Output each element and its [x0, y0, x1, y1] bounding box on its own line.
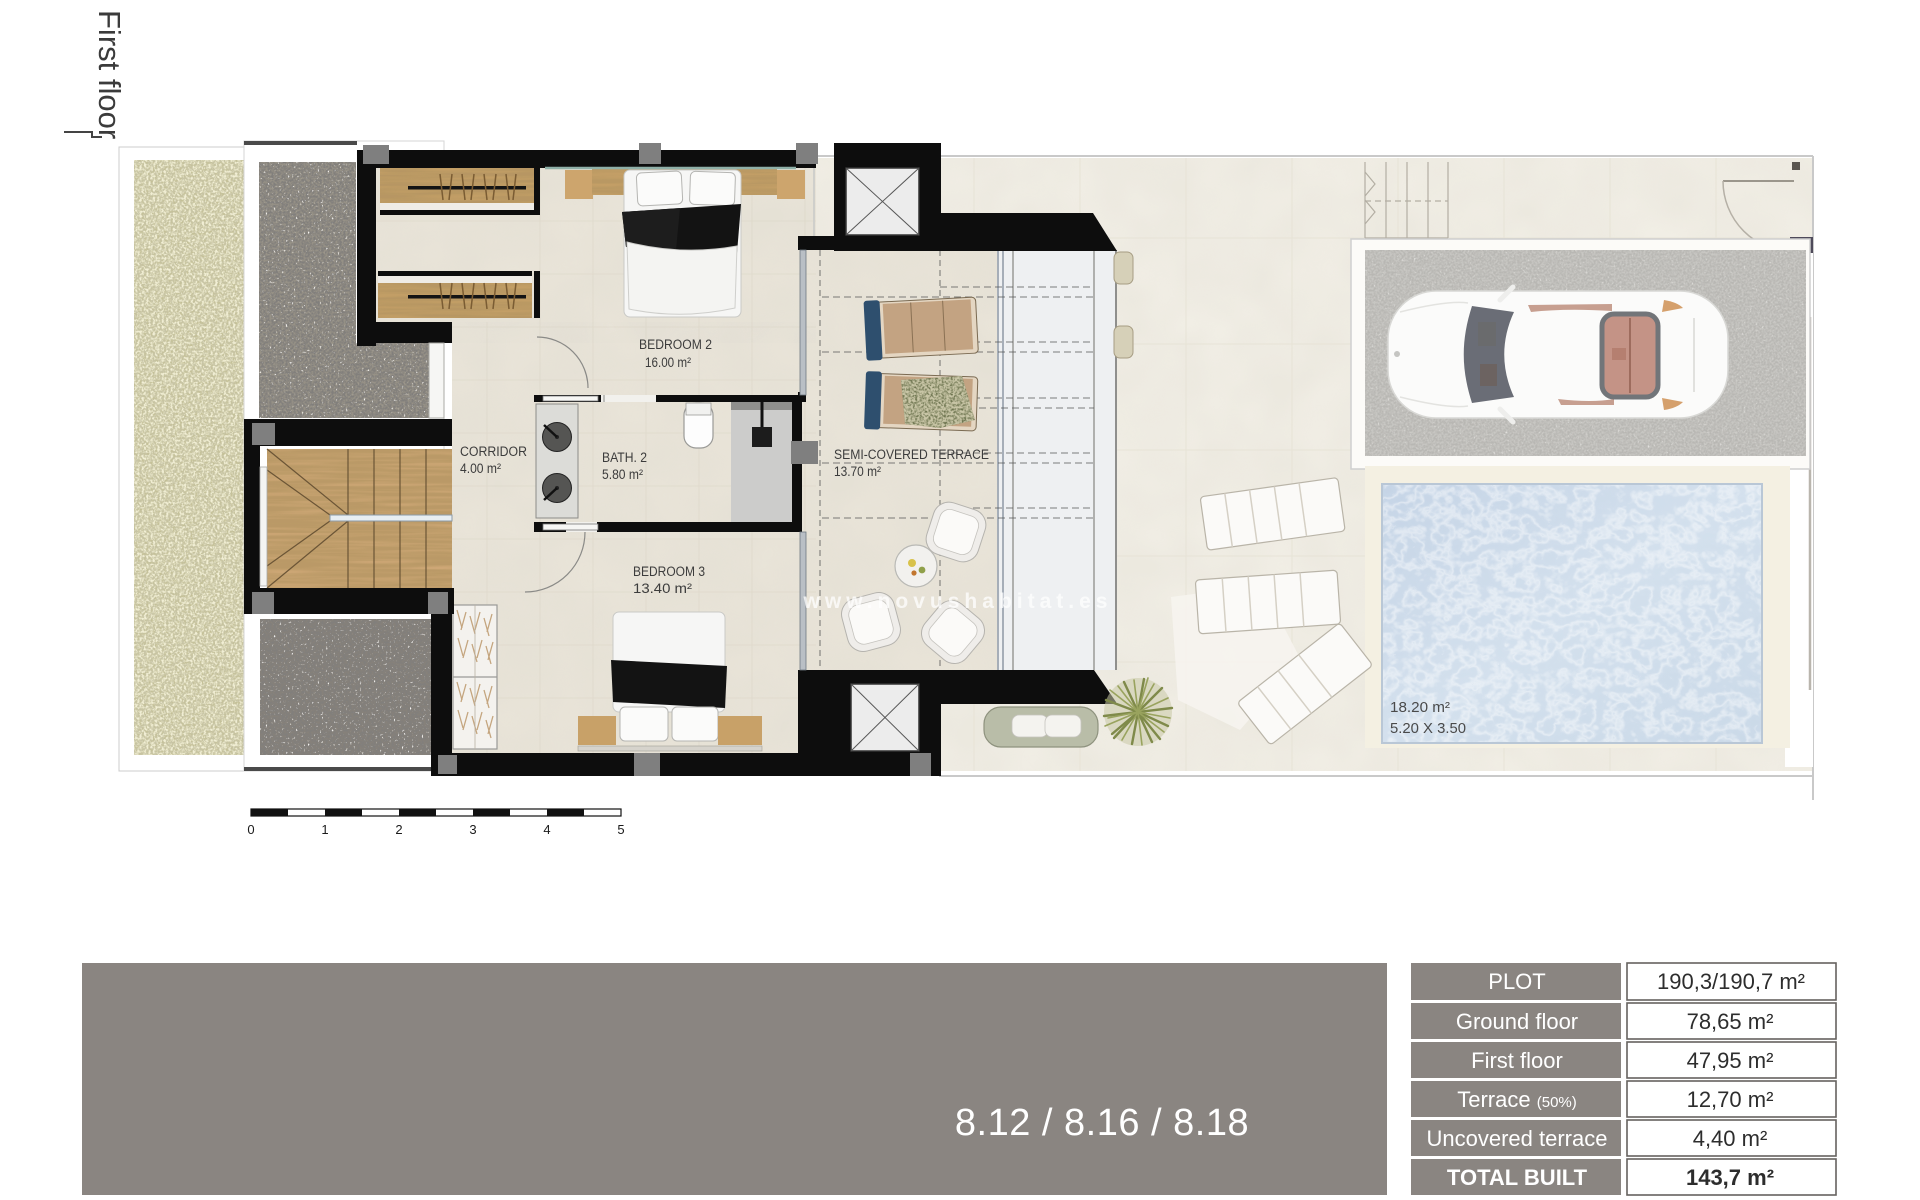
svg-text:PLOT: PLOT [1488, 969, 1545, 994]
svg-text:BEDROOM 2: BEDROOM 2 [639, 337, 712, 352]
svg-text:0: 0 [247, 822, 254, 837]
svg-text:47,95 m²: 47,95 m² [1687, 1048, 1774, 1073]
svg-text:www.novushabitat.es: www.novushabitat.es [803, 590, 1113, 613]
svg-text:SEMI-COVERED TERRACE: SEMI-COVERED TERRACE [834, 447, 989, 462]
svg-text:Uncovered terrace: Uncovered terrace [1427, 1126, 1608, 1151]
svg-text:8.12 / 8.16 / 8.18: 8.12 / 8.16 / 8.18 [955, 1102, 1249, 1144]
svg-text:First floor: First floor [1471, 1048, 1563, 1073]
svg-text:CORRIDOR: CORRIDOR [460, 444, 527, 459]
svg-text:3: 3 [469, 822, 476, 837]
svg-text:1: 1 [321, 822, 328, 837]
svg-text:Ground floor: Ground floor [1456, 1009, 1578, 1034]
svg-text:143,7 m²: 143,7 m² [1686, 1165, 1774, 1190]
svg-text:4: 4 [543, 822, 550, 837]
svg-text:5.20 X 3.50: 5.20 X 3.50 [1390, 721, 1466, 737]
svg-text:13.70 m²: 13.70 m² [834, 464, 881, 479]
svg-text:4.00 m²: 4.00 m² [460, 461, 501, 476]
svg-text:4,40 m²: 4,40 m² [1693, 1126, 1768, 1151]
svg-text:12,70 m²: 12,70 m² [1687, 1087, 1774, 1112]
svg-text:2: 2 [395, 822, 402, 837]
svg-text:5: 5 [617, 822, 624, 837]
svg-text:BATH. 2: BATH. 2 [602, 450, 647, 465]
svg-text:BEDROOM 3: BEDROOM 3 [633, 564, 705, 579]
svg-text:5.80 m²: 5.80 m² [602, 467, 643, 482]
svg-text:78,65 m²: 78,65 m² [1687, 1009, 1774, 1034]
svg-text:TOTAL BUILT: TOTAL BUILT [1447, 1165, 1588, 1190]
svg-text:18.20 m²: 18.20 m² [1390, 700, 1450, 716]
svg-text:16.00 m²: 16.00 m² [645, 355, 691, 370]
svg-text:First floor: First floor [92, 10, 127, 139]
svg-text:190,3/190,7 m²: 190,3/190,7 m² [1657, 969, 1805, 994]
svg-text:13.40 m²: 13.40 m² [633, 581, 693, 596]
